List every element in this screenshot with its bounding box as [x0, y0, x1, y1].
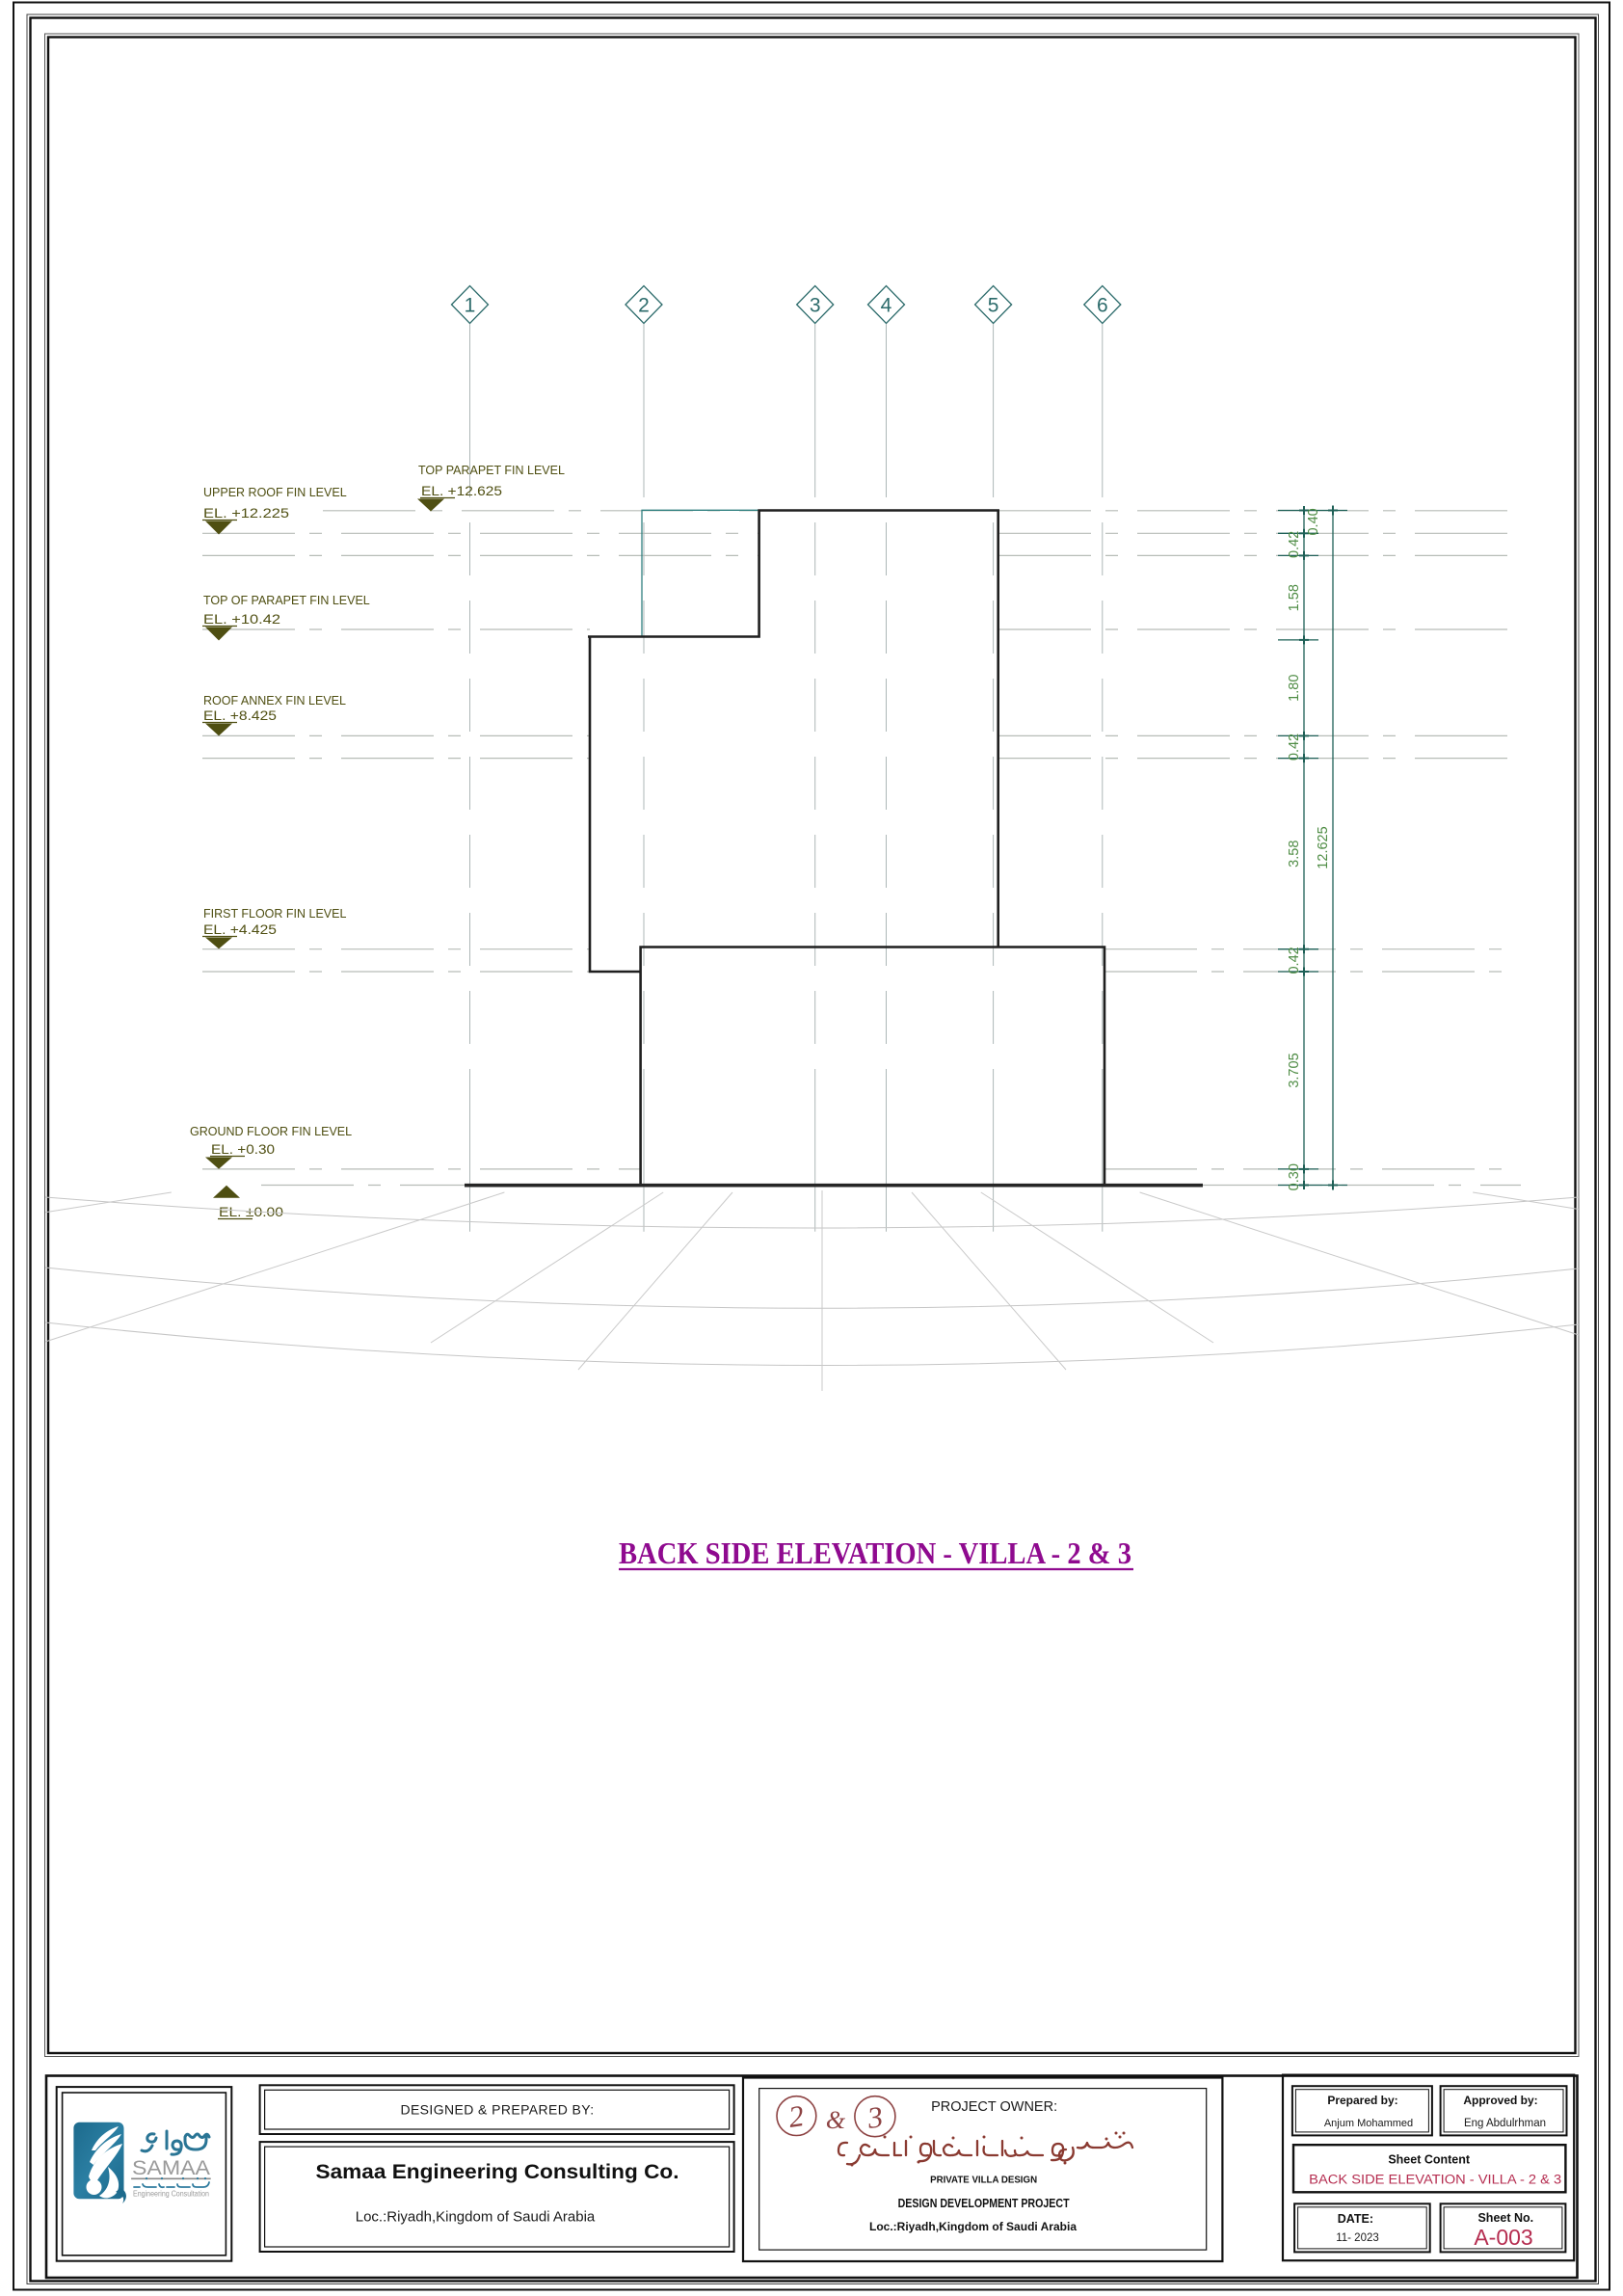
svg-text:12.625: 12.625	[1316, 826, 1331, 868]
svg-text:DATE:: DATE:	[1338, 2212, 1373, 2226]
svg-text:BACK SIDE ELEVATION - VILLA -: BACK SIDE ELEVATION - VILLA - 2 & 3	[1309, 2173, 1561, 2187]
svg-text:0.42: 0.42	[1287, 531, 1302, 558]
svg-text:3: 3	[810, 295, 821, 317]
svg-text:4: 4	[881, 295, 892, 317]
svg-text:BACK SIDE ELEVATION - VILLA -: BACK SIDE ELEVATION - VILLA - 2 & 3	[619, 1535, 1131, 1570]
svg-text:ROOF ANNEX FIN LEVEL: ROOF ANNEX FIN LEVEL	[203, 694, 346, 707]
svg-text:Samaa Engineering Consulting C: Samaa Engineering Consulting Co.	[316, 2160, 679, 2183]
svg-text:5: 5	[988, 295, 999, 317]
svg-text:PRIVATE VILLA DESIGN: PRIVATE VILLA DESIGN	[930, 2176, 1037, 2186]
svg-text:GROUND FLOOR FIN LEVEL: GROUND FLOOR FIN LEVEL	[190, 1125, 352, 1138]
svg-text:Prepared by:: Prepared by:	[1327, 2094, 1397, 2107]
svg-text:TOP OF PARAPET FIN LEVEL: TOP OF PARAPET FIN LEVEL	[203, 594, 370, 607]
svg-text:Eng Abdulrhman: Eng Abdulrhman	[1464, 2118, 1546, 2129]
svg-text:EL. +8.425: EL. +8.425	[203, 707, 277, 723]
svg-text:1.58: 1.58	[1287, 584, 1302, 611]
svg-text:1.80: 1.80	[1287, 675, 1302, 702]
svg-text:DESIGN DEVELOPMENT PROJECT: DESIGN DEVELOPMENT PROJECT	[898, 2197, 1070, 2210]
svg-text:EL. +12.625: EL. +12.625	[421, 483, 502, 498]
svg-text:Loc.:Riyadh,Kingdom of Saudi: Loc.:Riyadh,Kingdom of Saudi Arabia	[869, 2220, 1077, 2233]
svg-text:1: 1	[465, 295, 476, 317]
svg-text:SAMAA: SAMAA	[132, 2157, 210, 2179]
svg-text:EL. +0.30: EL. +0.30	[211, 1141, 275, 1157]
svg-text:0.42: 0.42	[1287, 947, 1302, 974]
svg-text:Sheet No.: Sheet No.	[1477, 2211, 1533, 2225]
svg-text:FIRST FLOOR FIN LEVEL: FIRST FLOOR FIN LEVEL	[203, 907, 346, 921]
svg-text:DESIGNED & PREPARED BY:: DESIGNED & PREPARED BY:	[400, 2102, 594, 2118]
svg-text:PROJECT OWNER:: PROJECT OWNER:	[931, 2099, 1057, 2115]
svg-text:0.42: 0.42	[1287, 734, 1302, 761]
svg-text:EL. +4.425: EL. +4.425	[203, 921, 277, 937]
svg-text:UPPER ROOF FIN LEVEL: UPPER ROOF FIN LEVEL	[203, 486, 347, 499]
svg-text:0.40: 0.40	[1306, 508, 1321, 535]
svg-text:A-003: A-003	[1474, 2225, 1532, 2250]
svg-text:Loc.:Riyadh,Kingdom of Saudi A: Loc.:Riyadh,Kingdom of Saudi Arabia	[356, 2209, 596, 2226]
svg-text:2: 2	[786, 2098, 806, 2134]
svg-text:11- 2023: 11- 2023	[1336, 2232, 1379, 2244]
svg-text:Sheet Content: Sheet Content	[1388, 2153, 1471, 2167]
svg-text:Anjum Mohammed: Anjum Mohammed	[1324, 2118, 1413, 2129]
svg-text:EL. +12.225: EL. +12.225	[203, 505, 289, 521]
svg-text:&: &	[826, 2106, 846, 2134]
svg-text:Engineering Consultation: Engineering Consultation	[133, 2190, 209, 2199]
svg-text:3.705: 3.705	[1287, 1053, 1302, 1087]
svg-text:TOP PARAPET FIN LEVEL: TOP PARAPET FIN LEVEL	[418, 464, 565, 477]
svg-text:0.30: 0.30	[1287, 1163, 1302, 1190]
svg-text:3.58: 3.58	[1287, 841, 1302, 868]
svg-text:2: 2	[638, 295, 650, 317]
svg-text:EL. +10.42: EL. +10.42	[203, 611, 280, 627]
svg-text:6: 6	[1097, 295, 1108, 317]
svg-text:Approved by:: Approved by:	[1463, 2094, 1537, 2107]
svg-text:3: 3	[865, 2099, 885, 2135]
